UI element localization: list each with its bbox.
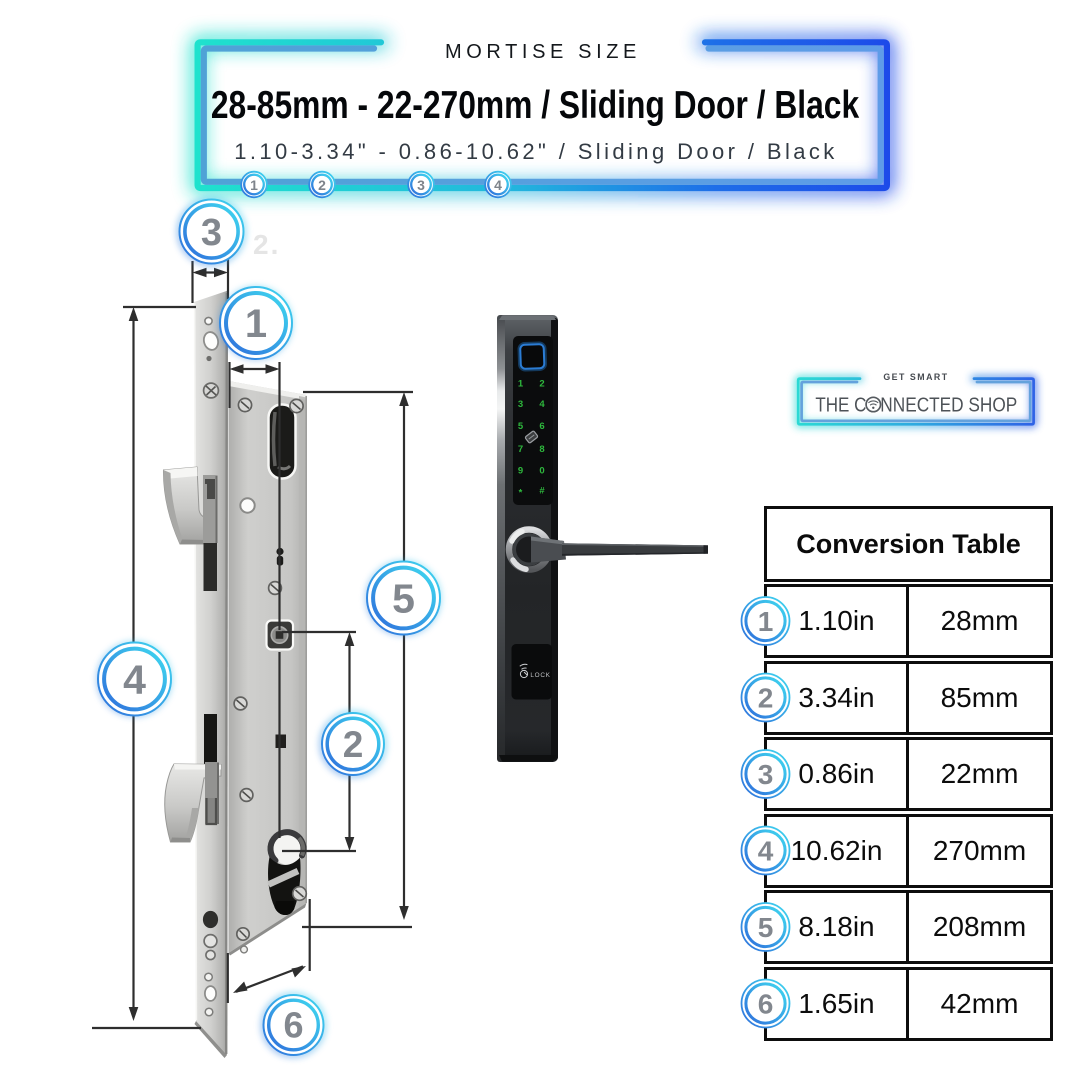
svg-text:6: 6	[758, 989, 774, 1020]
svg-text:3: 3	[758, 759, 774, 790]
svg-text:2: 2	[758, 683, 774, 714]
svg-text:4: 4	[758, 836, 774, 867]
svg-text:5: 5	[758, 912, 774, 943]
svg-text:1: 1	[758, 606, 774, 637]
